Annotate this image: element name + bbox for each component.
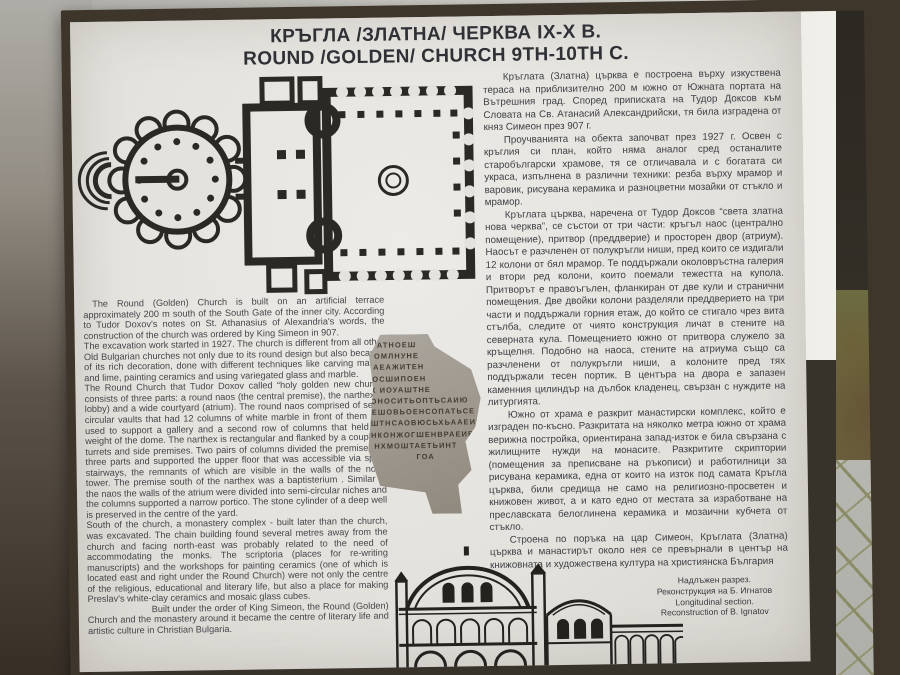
information-sign-board: КРЪГЛА /ЗЛАТНА/ ЧЕРКВА IX-X В. ROUND /GO… [61,0,900,675]
bulgarian-text-column: Кръглата (Златна) църква е построена вър… [483,68,788,572]
english-paragraph: The excavation work started in 1927. The… [84,337,386,384]
english-text-column: The Round (Golden) Church is built on an… [83,295,389,637]
inscription-line: ОМЛНУНЕ [367,349,480,362]
photo-of-information-sign: КРЪГЛА /ЗЛАТНА/ ЧЕРКВА IX-X В. ROUND /GO… [0,0,900,675]
english-paragraph: The Round (Golden) Church is built on an… [83,295,385,342]
bulgarian-paragraph: Кръглата (Златна) църква е построена вър… [483,68,782,135]
english-paragraph: Built under the order of King Simeon, th… [88,600,389,636]
bulgarian-paragraph: Проучванията на обекта започват през 192… [484,130,783,209]
english-paragraph: South of the church, a monastery complex… [86,516,388,605]
inscription-line: АТНОЕШ [367,338,480,351]
bulgarian-paragraph: Кръглата църква, наречена от Тудор Доксо… [485,205,786,409]
sign-face: КРЪГЛА /ЗЛАТНА/ ЧЕРКВА IX-X В. ROUND /GO… [70,11,811,672]
bulgarian-paragraph: Южно от храма е разкрит манастирски комп… [488,405,788,534]
inscription-line: НКОНЖОГШЕНВРАЕИВ [368,428,481,441]
english-paragraph: The Round Church that Tudor Doxov called… [84,379,387,521]
inscription-line: ГОА [368,450,481,463]
floor-plan-drawing [76,73,483,299]
longitudinal-section-drawing [386,541,684,672]
sign-title: КРЪГЛА /ЗЛАТНА/ ЧЕРКВА IX-X В. ROUND /GO… [70,18,802,72]
